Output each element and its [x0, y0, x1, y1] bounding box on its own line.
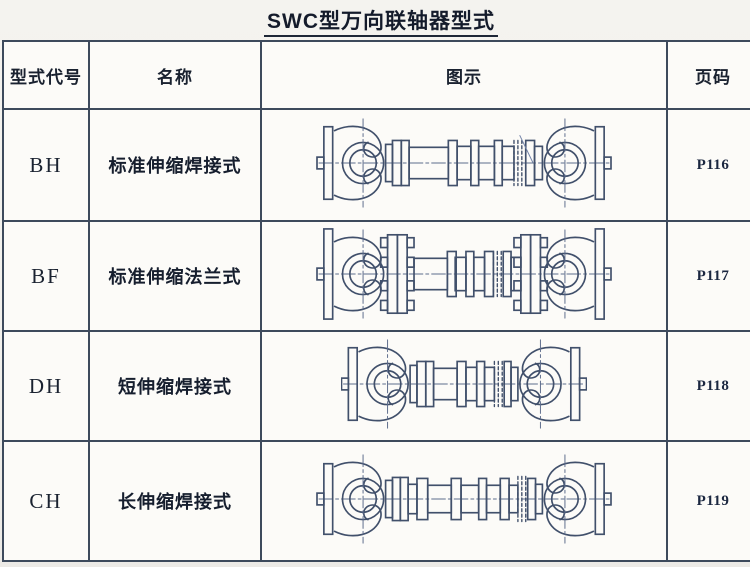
page-title: SWC型万向联轴器型式 [0, 5, 750, 35]
page-title-text: SWC型万向联轴器型式 [264, 10, 498, 37]
row-name-bf: 标准伸缩法兰式 [90, 222, 262, 332]
row-code-dh: DH [4, 332, 90, 442]
coupling-drawing-ch [315, 450, 613, 553]
row-code-bh: BH [4, 110, 90, 222]
header-diagram: 图示 [262, 42, 668, 110]
table-row-drawing-cell [262, 110, 668, 222]
row-name-ch: 长伸缩焊接式 [90, 442, 262, 560]
table-row-drawing-cell [262, 442, 668, 560]
row-code-ch: CH [4, 442, 90, 560]
row-name-bh: 标准伸缩焊接式 [90, 110, 262, 222]
row-page-bf: P117 [668, 222, 750, 332]
catalog-page: SWC型万向联轴器型式 型式代号 名称 图示 页码 BH 标准伸缩焊接式 [0, 0, 750, 567]
row-code-bf: BF [4, 222, 90, 332]
header-page: 页码 [668, 42, 750, 110]
row-page-dh: P118 [668, 332, 750, 442]
table-row-drawing-cell [262, 332, 668, 442]
row-page-ch: P119 [668, 442, 750, 560]
coupling-drawing-dh [341, 335, 587, 438]
coupling-type-table: 型式代号 名称 图示 页码 BH 标准伸缩焊接式 [2, 40, 750, 562]
row-page-bh: P116 [668, 110, 750, 222]
coupling-drawing-bf [314, 225, 614, 328]
coupling-drawing-bh [316, 114, 612, 217]
header-name: 名称 [90, 42, 262, 110]
row-name-dh: 短伸缩焊接式 [90, 332, 262, 442]
header-type-code: 型式代号 [4, 42, 90, 110]
table-row-drawing-cell [262, 222, 668, 332]
